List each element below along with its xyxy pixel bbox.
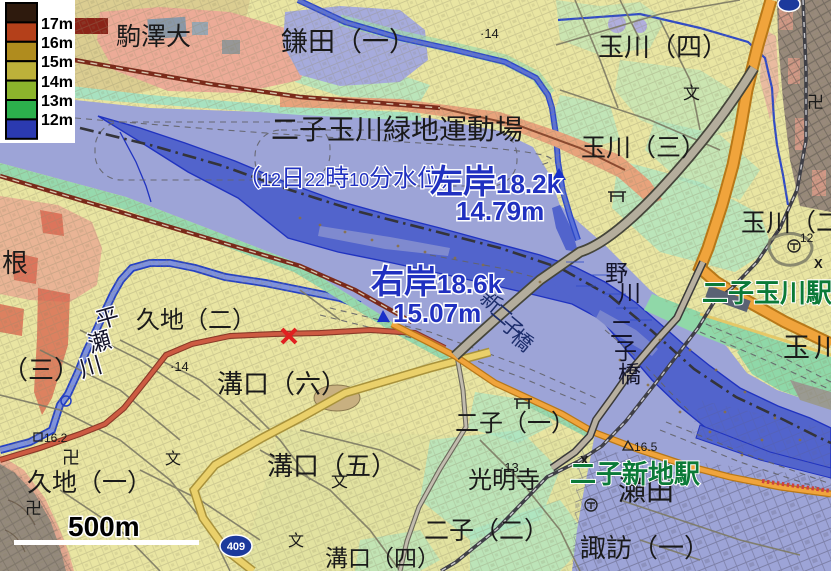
svg-text:溝口（六）: 溝口（六） — [217, 369, 347, 399]
svg-text:16.2: 16.2 — [44, 431, 68, 445]
svg-text:二子新地駅: 二子新地駅 — [570, 459, 700, 489]
svg-text:久地（一）: 久地（一） — [27, 469, 152, 497]
svg-text:久地（二）: 久地（二） — [136, 307, 256, 334]
svg-text:玉川（二）: 玉川（二） — [741, 209, 831, 237]
svg-text:卍: 卍 — [807, 93, 824, 112]
svg-text:15.07m: 15.07m — [393, 298, 481, 328]
svg-text:卍: 卍 — [62, 448, 80, 468]
svg-text:·13: ·13 — [500, 460, 519, 475]
svg-text:右岸18.6k: 右岸18.6k — [371, 263, 503, 300]
svg-text:二子（一）: 二子（一） — [455, 410, 575, 437]
svg-text:·14: ·14 — [170, 359, 189, 374]
svg-text:15m: 15m — [41, 54, 73, 71]
svg-text:文: 文 — [331, 472, 348, 491]
svg-text:文: 文 — [288, 532, 304, 550]
svg-text:·14: ·14 — [480, 26, 499, 41]
svg-text:14m: 14m — [41, 74, 73, 91]
svg-text:12m: 12m — [41, 112, 73, 129]
svg-text:X: X — [814, 256, 823, 271]
svg-text:玉川: 玉川 — [783, 333, 831, 363]
svg-text:（三）: （三） — [2, 355, 80, 385]
svg-text:玉川（三）: 玉川（三） — [581, 134, 706, 162]
svg-text:500m: 500m — [68, 511, 140, 542]
svg-text:二子玉川駅: 二子玉川駅 — [702, 278, 831, 308]
svg-text:駒澤大: 駒澤大 — [116, 23, 191, 51]
svg-text:13m: 13m — [41, 93, 73, 110]
svg-text:文: 文 — [683, 84, 700, 103]
svg-text:橋: 橋 — [618, 361, 641, 387]
svg-text:12: 12 — [800, 231, 814, 245]
svg-text:左岸18.2k: 左岸18.2k — [430, 163, 562, 200]
svg-text:川: 川 — [618, 280, 641, 306]
svg-text:卍: 卍 — [25, 499, 42, 518]
svg-text:諏訪（一）: 諏訪（一） — [580, 533, 710, 563]
svg-text:二子玉川緑地運動場: 二子玉川緑地運動場 — [271, 114, 523, 145]
svg-text:溝口（四）: 溝口（四） — [325, 545, 440, 571]
svg-text:409: 409 — [227, 541, 245, 553]
svg-text:鎌田（一）: 鎌田（一） — [281, 27, 416, 57]
svg-text:14.79m: 14.79m — [456, 196, 544, 226]
svg-text:文: 文 — [165, 450, 181, 468]
svg-text:16m: 16m — [41, 35, 73, 52]
svg-text:二子（二）: 二子（二） — [424, 517, 549, 545]
svg-text:17m: 17m — [41, 16, 73, 33]
svg-text:根: 根 — [2, 248, 28, 278]
svg-text:16.5: 16.5 — [634, 440, 658, 454]
svg-text:玉川（四）: 玉川（四） — [598, 32, 728, 62]
